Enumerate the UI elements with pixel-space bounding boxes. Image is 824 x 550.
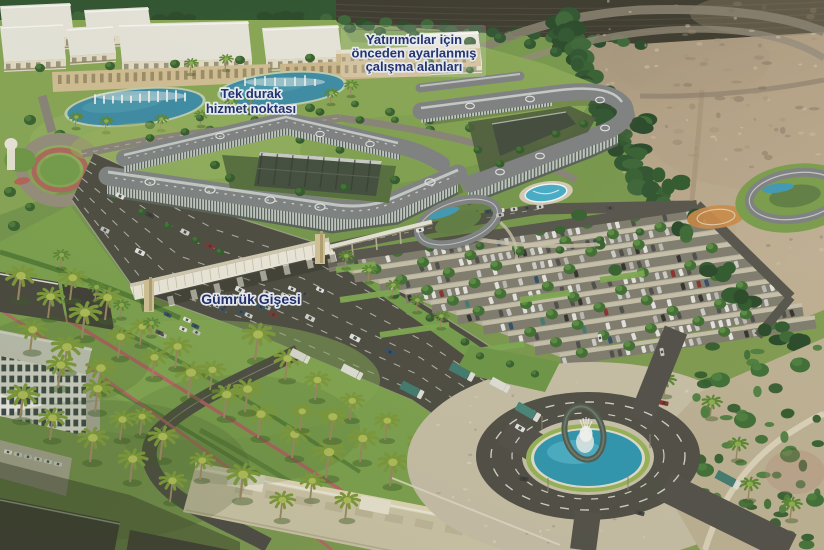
svg-text:Tek durak: Tek durak (221, 86, 282, 101)
svg-text:çalışma alanları: çalışma alanları (366, 59, 463, 74)
svg-text:hizmet noktası: hizmet noktası (206, 101, 296, 116)
svg-text:Gümrük Gişesi: Gümrük Gişesi (201, 291, 301, 307)
